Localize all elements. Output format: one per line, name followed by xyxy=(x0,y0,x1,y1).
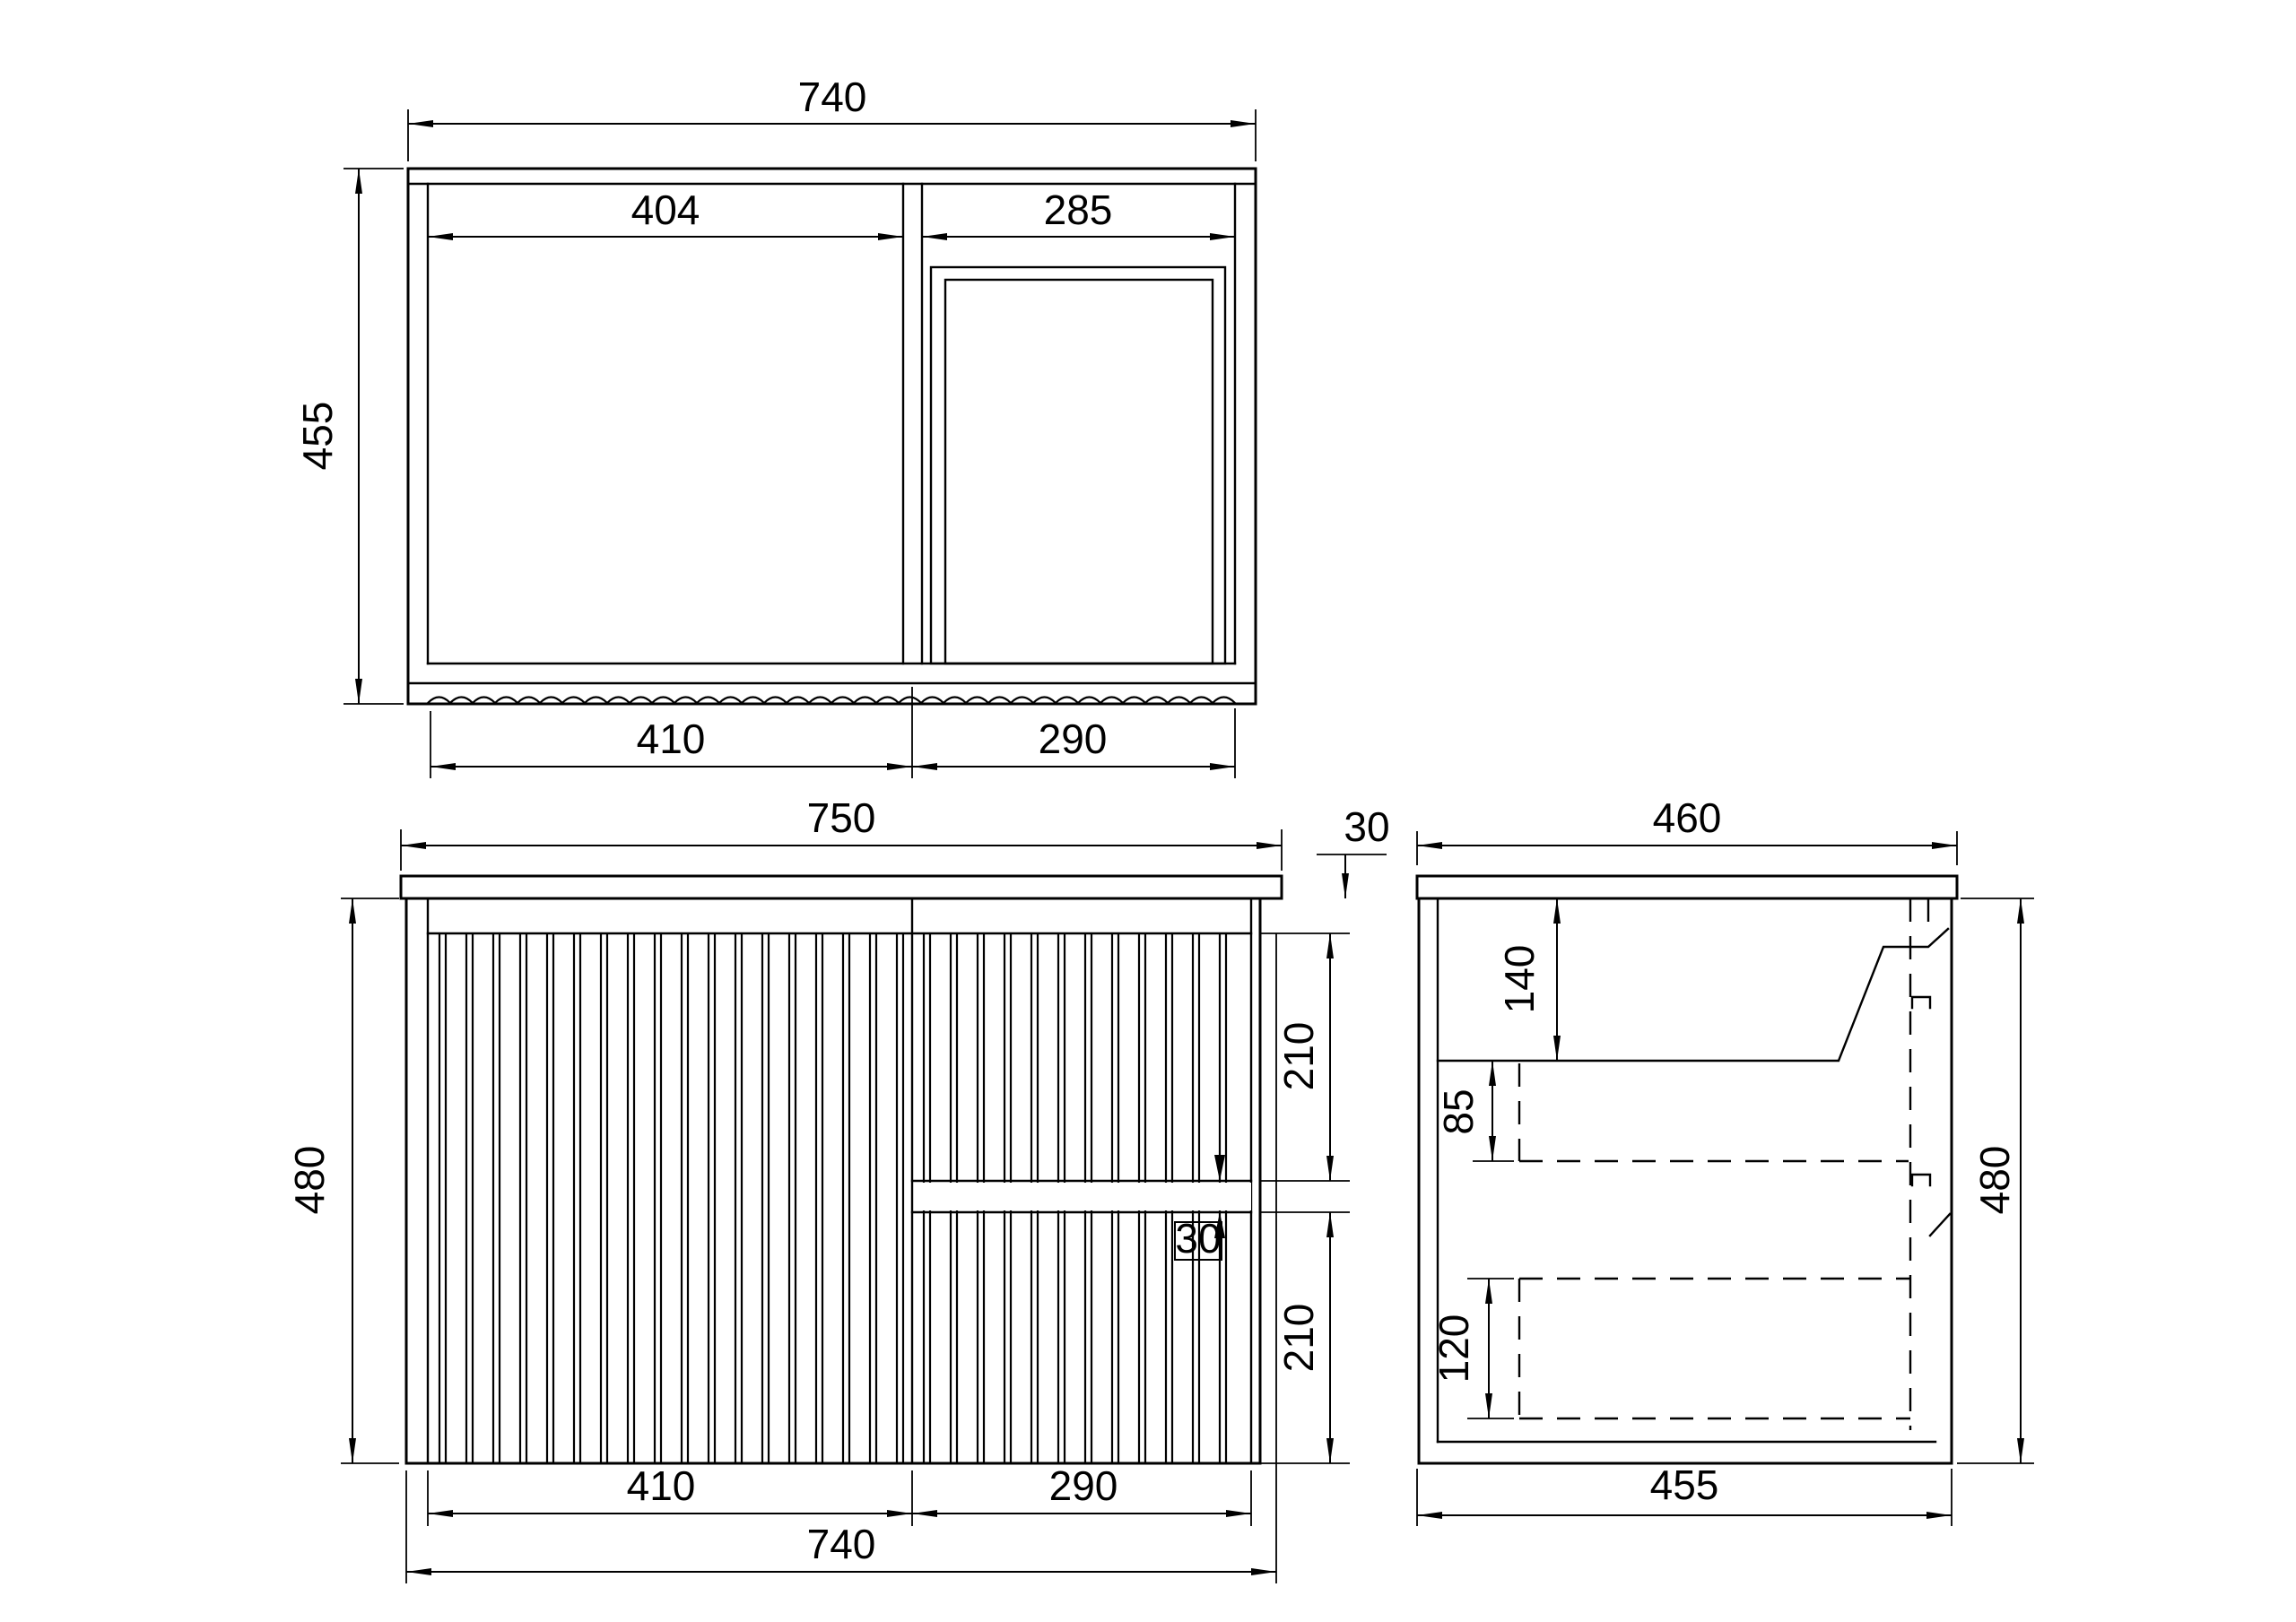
dim-label-front-drawer-width: 290 xyxy=(1049,1462,1118,1509)
front-view: 750 30 480 210 210 30 410 290 xyxy=(286,794,1389,1583)
dim-label-side-lower-drawer-height: 120 xyxy=(1431,1314,1477,1383)
side-runner-slash xyxy=(1930,1214,1950,1236)
dim-label-front-door-width: 410 xyxy=(627,1462,696,1509)
technical-drawing-canvas: 740 455 404 285 410 290 xyxy=(0,0,2296,1622)
front-countertop xyxy=(401,876,1282,898)
dim-label-front-body-height: 480 xyxy=(286,1146,333,1215)
side-view: 460 140 85 120 455 480 xyxy=(1417,794,2034,1526)
dim-label-front-lower-drawer: 210 xyxy=(1275,1304,1322,1373)
dim-label-front-countertop-thickness: 30 xyxy=(1344,803,1389,850)
front-drawer-gap-fill xyxy=(914,1183,1251,1210)
dim-label-front-upper-drawer: 210 xyxy=(1275,1022,1322,1091)
top-view-fluted-wave xyxy=(428,698,1235,704)
dim-label-front-drawer-gap: 30 xyxy=(1175,1215,1221,1262)
dim-label-top-left-door: 410 xyxy=(637,716,706,762)
side-countertop xyxy=(1417,876,1957,898)
gap-arrow-down xyxy=(1214,1155,1225,1181)
dim-label-top-right-door: 290 xyxy=(1039,716,1108,762)
dim-label-front-countertop-width: 750 xyxy=(807,794,876,841)
dim-label-top-overall-width: 740 xyxy=(798,74,867,120)
top-view-carcass-outline xyxy=(408,169,1256,704)
dim-label-side-basin-depth: 140 xyxy=(1496,945,1543,1014)
top-view-door-box-outer xyxy=(931,267,1225,664)
vanity-drawing-svg: 740 455 404 285 410 290 xyxy=(0,0,2296,1622)
side-runner-clip-lower xyxy=(1912,1175,1930,1185)
dim-label-front-body-width: 740 xyxy=(807,1521,876,1567)
dim-label-side-body-depth: 455 xyxy=(1650,1462,1719,1508)
dim-label-top-overall-depth: 455 xyxy=(294,402,341,471)
dim-label-top-left-opening: 404 xyxy=(631,186,700,233)
dim-label-side-runner-clearance: 85 xyxy=(1435,1089,1482,1134)
side-runner-clip-upper xyxy=(1912,997,1930,1008)
top-view-door-box-inner xyxy=(945,280,1213,664)
dim-label-top-right-opening: 285 xyxy=(1044,186,1113,233)
dim-label-side-body-height: 480 xyxy=(1971,1146,2018,1215)
top-view: 740 455 404 285 410 290 xyxy=(294,74,1256,778)
dim-label-side-countertop-depth: 460 xyxy=(1653,794,1722,841)
